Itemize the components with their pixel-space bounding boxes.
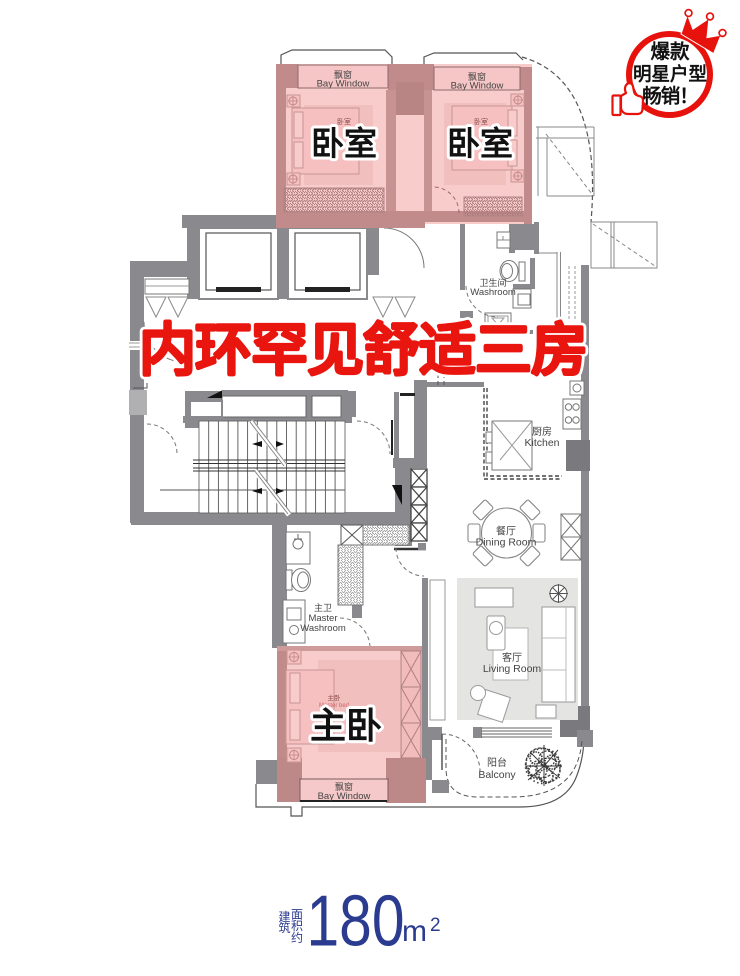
svg-text:m: m [402, 915, 427, 948]
svg-text:Washroom: Washroom [470, 287, 516, 298]
svg-text:Balcony: Balcony [478, 769, 516, 781]
svg-text:Kitchen: Kitchen [524, 437, 559, 449]
svg-text:180: 180 [307, 880, 405, 961]
svg-text:阳台: 阳台 [487, 756, 507, 769]
svg-text:Bay Window: Bay Window [318, 791, 371, 802]
svg-text:主卧: 主卧 [328, 693, 342, 702]
svg-text:卧室: 卧室 [447, 125, 513, 162]
svg-text:畅销！: 畅销！ [642, 85, 698, 108]
svg-text:主卫: 主卫 [314, 602, 332, 613]
svg-text:明星户型: 明星户型 [633, 64, 707, 85]
svg-text:Bay Window: Bay Window [451, 81, 504, 92]
svg-text:卧室: 卧室 [311, 125, 377, 162]
svg-text:内环罕见舒适三房: 内环罕见舒适三房 [139, 319, 587, 383]
svg-text:2: 2 [430, 915, 441, 936]
svg-text:约: 约 [291, 930, 303, 945]
svg-text:主卧: 主卧 [310, 705, 382, 746]
svg-text:爆款: 爆款 [650, 40, 690, 63]
svg-text:Washroom: Washroom [300, 623, 346, 634]
svg-text:Dining Room: Dining Room [476, 537, 537, 549]
svg-text:Living Room: Living Room [483, 663, 542, 675]
svg-text:Bay Window: Bay Window [317, 79, 370, 90]
svg-text:筑: 筑 [278, 920, 290, 935]
